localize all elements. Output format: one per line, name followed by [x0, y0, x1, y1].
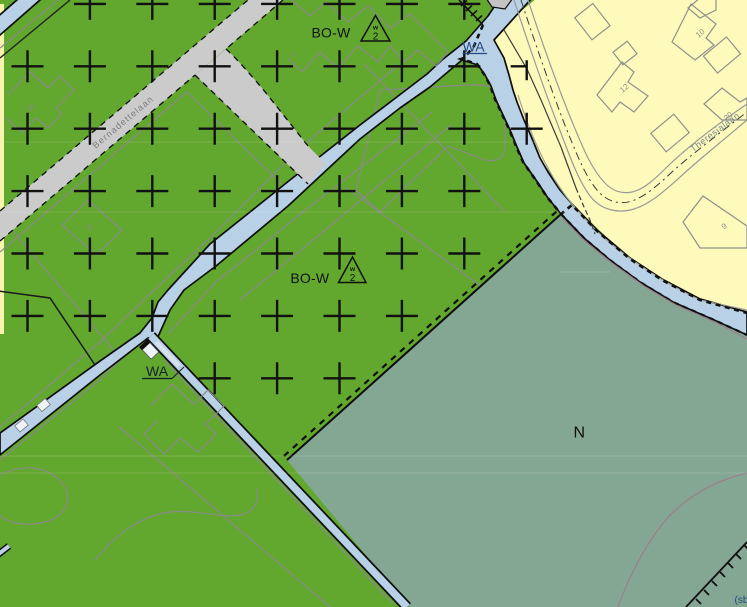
svg-text:WA: WA — [463, 39, 486, 55]
svg-text:w: w — [372, 25, 379, 32]
svg-text:2: 2 — [373, 32, 379, 43]
svg-text:BO-W: BO-W — [312, 24, 351, 40]
svg-text:N: N — [574, 425, 586, 442]
svg-text:2: 2 — [350, 273, 356, 284]
svg-text:WA: WA — [146, 363, 169, 379]
svg-text:w: w — [349, 266, 356, 273]
svg-text:(sb: (sb — [735, 595, 747, 606]
svg-text:BO-W: BO-W — [290, 270, 329, 286]
